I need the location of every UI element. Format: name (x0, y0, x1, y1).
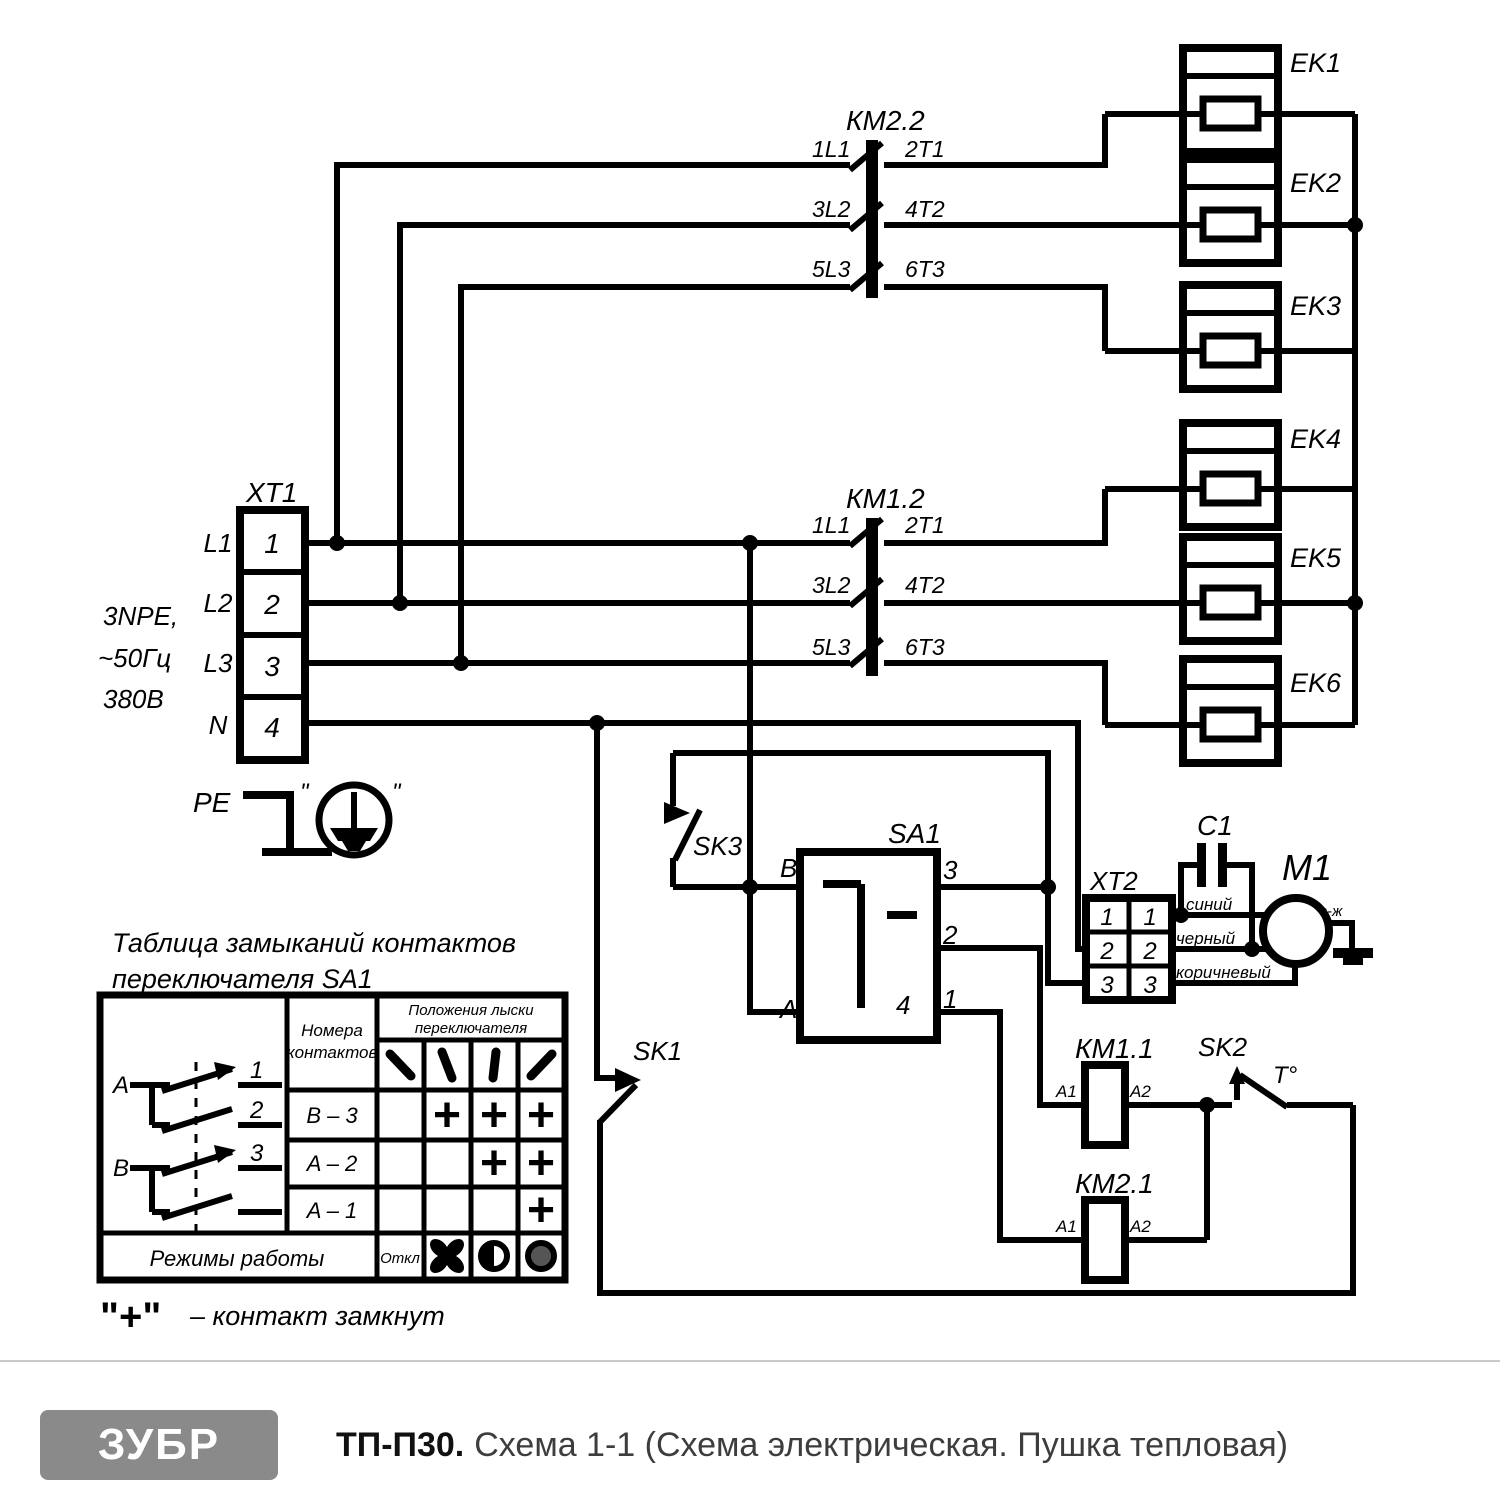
km21-body (1085, 1200, 1125, 1280)
wire-6t3-bot (884, 663, 1105, 725)
wire-sa1-out1-km21 (937, 1012, 1085, 1240)
heater-ek2: EK2 (1183, 159, 1355, 263)
km12-2t1: 2T1 (904, 512, 945, 538)
ek6-label: EK6 (1290, 668, 1342, 698)
phase-l2-label: L2 (204, 588, 233, 618)
km12-4t2: 4T2 (905, 572, 945, 598)
km12-label: КМ1.2 (846, 483, 925, 514)
sk1-contact-arrow (615, 1068, 641, 1092)
xt2-label: XT2 (1089, 866, 1138, 896)
supply-spec-1: 3NPE, (103, 601, 178, 631)
wire-brown-label: коричневый (1176, 963, 1271, 982)
legend-text: – контакт замкнут (189, 1301, 445, 1331)
xt1-label: XT1 (245, 477, 297, 508)
xt1-terminal-4: 4 (264, 712, 280, 743)
km11-coil: КМ1.1 A1 A2 (1055, 1033, 1154, 1145)
wire-black-label: черный (1176, 929, 1236, 948)
ek5-label: EK5 (1290, 543, 1342, 573)
diagram-1-label: 1 (250, 1057, 263, 1084)
sk3-switch: SK3 (664, 753, 743, 887)
heater-ek1: EK1 (1105, 48, 1355, 152)
wire-6t3-top (884, 287, 1105, 351)
mark-b3-pos2: + (480, 1089, 508, 1142)
phase-l1-label: L1 (204, 528, 233, 558)
pe-earth: PE " " (193, 779, 402, 855)
supply-spec-3: 380В (103, 684, 164, 714)
circuit-diagram: XT1 1 2 3 4 L1 L2 L3 N 3NPE, ~50Гц 380В … (0, 0, 1500, 1370)
ek4-element (1203, 474, 1258, 503)
xt2-l2: 2 (1099, 938, 1113, 965)
mode-full-power-icon (528, 1243, 554, 1269)
ek1-label: EK1 (1290, 48, 1341, 78)
xt2-l1: 1 (1100, 904, 1113, 931)
wire-bottom-return (600, 1105, 1353, 1293)
brand-logo-icon (0, 1395, 38, 1439)
mark-a1-pos3: + (527, 1184, 555, 1237)
xt2-terminal-block: XT2 1 2 3 1 2 3 (1086, 866, 1172, 1000)
km12-contacts: КМ1.2 1L1 2T1 3L2 4T2 5L3 6T3 (812, 483, 945, 676)
legend-plus: "+" (100, 1295, 161, 1339)
pe-label: PE (193, 787, 231, 818)
c1-label: C1 (1197, 810, 1233, 841)
table-title-line2: переключателя SA1 (112, 964, 373, 994)
footer-divider (0, 1360, 1500, 1362)
col-contacts-header-2: контактов (287, 1043, 378, 1062)
km21-a2: A2 (1129, 1217, 1151, 1236)
col-positions-header-1: Положения лыски (408, 1002, 534, 1019)
xt1-terminal-block: XT1 1 2 3 4 L1 L2 L3 N 3NPE, ~50Гц 380В (98, 477, 305, 760)
km22-6t3: 6T3 (905, 256, 945, 282)
sa1-in-a: A (778, 994, 797, 1024)
wire-ground-label: з-ж (1319, 903, 1343, 920)
sk1-switch: SK1 (597, 1036, 682, 1122)
mode-half-power-icon (481, 1243, 507, 1269)
sk1-label: SK1 (633, 1036, 682, 1066)
sa1-out-3: 3 (943, 855, 958, 885)
col-positions-header-2: переключателя (415, 1020, 527, 1037)
xt1-terminal-3: 3 (264, 651, 280, 682)
km12-3l2: 3L2 (812, 572, 851, 598)
riser-l2 (400, 225, 850, 603)
sa1-contact-table: Таблица замыканий контактов переключател… (100, 928, 565, 1339)
km22-2t1: 2T1 (904, 136, 945, 162)
km11-a2: A2 (1129, 1082, 1151, 1101)
wire-blue-label: синий (1186, 895, 1233, 914)
sk3-contact-arrow (664, 802, 690, 824)
sk2-label: SK2 (1198, 1032, 1248, 1062)
heater-ek5: EK5 (1183, 537, 1355, 641)
ek3-element (1203, 336, 1258, 365)
sa1-out-2: 2 (942, 920, 958, 950)
col-contacts-header-1: Номера (301, 1021, 363, 1040)
sk2-thermal-switch: SK2 T° (1198, 1032, 1298, 1107)
mark-b3-pos1: + (433, 1089, 461, 1142)
diagram-b-label: B (113, 1155, 129, 1182)
ek5-element (1203, 588, 1258, 617)
earth-quote-right: " (392, 779, 402, 806)
sa1-body (800, 852, 937, 1040)
table-title-line1: Таблица замыканий контактов (112, 928, 516, 958)
heater-ek3: EK3 (1105, 285, 1355, 389)
sk1-top-stub (597, 1068, 615, 1078)
ek2-element (1203, 210, 1258, 239)
c1-plate-right (1218, 843, 1227, 887)
sa1-in-b: B (780, 853, 797, 883)
km11-body (1085, 1065, 1125, 1145)
km22-contacts: КМ2.2 1L1 2T1 3L2 4T2 5L3 6T3 (812, 105, 945, 298)
km22-4t2: 4T2 (905, 196, 945, 222)
sa1-label: SA1 (888, 818, 941, 849)
schematic-page: XT1 1 2 3 4 L1 L2 L3 N 3NPE, ~50Гц 380В … (0, 0, 1500, 1500)
row-a1-name: A – 1 (305, 1198, 358, 1223)
caption-text: Схема 1-1 (Схема электрическая. Пушка те… (474, 1426, 1288, 1464)
position-icon-2 (493, 1052, 496, 1078)
heater-ek4: EK4 (1105, 423, 1355, 527)
supply-spec-2: ~50Гц (98, 643, 171, 673)
ek6-element (1203, 710, 1258, 739)
ek3-label: EK3 (1290, 291, 1341, 321)
row-a2-name: A – 2 (305, 1151, 358, 1176)
brand-logo: ЗУБР (40, 1410, 278, 1480)
sa1-out-4: 4 (896, 990, 910, 1020)
brand-name: ЗУБР (98, 1420, 220, 1470)
phase-l3-label: L3 (204, 648, 233, 678)
diagram-3-label: 3 (250, 1140, 264, 1167)
c1-plate-left (1197, 843, 1206, 887)
heater-ek6: EK6 (1105, 659, 1355, 763)
ek2-label: EK2 (1290, 168, 1341, 198)
km12-5l3: 5L3 (812, 634, 851, 660)
table-legend: "+" – контакт замкнут (100, 1295, 445, 1339)
mark-a2-pos3: + (527, 1137, 555, 1190)
m1-label: M1 (1282, 847, 1332, 888)
km21-label: КМ2.1 (1075, 1168, 1154, 1199)
ground-bar (1333, 948, 1373, 958)
pe-wire (243, 795, 290, 850)
km22-5l3: 5L3 (812, 256, 851, 282)
ground-bar-2 (1343, 958, 1363, 965)
xt2-r2: 2 (1142, 938, 1156, 965)
earth-quote-left: " (300, 779, 310, 806)
phase-n-label: N (209, 710, 228, 740)
mark-b3-pos3: + (527, 1089, 555, 1142)
km22-label: КМ2.2 (846, 105, 925, 136)
ek4-label: EK4 (1290, 424, 1341, 454)
km21-coil: КМ2.1 A1 A2 (1055, 1168, 1154, 1280)
sa1-selector: SA1 B A 3 2 1 4 (778, 818, 958, 1040)
diagram-a-label: A (111, 1072, 129, 1099)
xt1-terminal-2: 2 (263, 589, 280, 620)
model-number: ТП-П30. (336, 1426, 464, 1464)
riser-l1 (337, 165, 850, 543)
sa1-out-1: 1 (943, 984, 957, 1014)
row-b3-name: B – 3 (306, 1103, 358, 1128)
km11-label: КМ1.1 (1075, 1033, 1154, 1064)
modes-label: Режимы работы (150, 1246, 325, 1271)
km11-a1: A1 (1055, 1082, 1077, 1101)
sk3-label: SK3 (693, 831, 743, 861)
xt2-r3: 3 (1143, 972, 1157, 999)
off-label: Откл (380, 1250, 420, 1267)
xt2-l3: 3 (1100, 972, 1114, 999)
earth-block-1 (330, 828, 378, 841)
document-caption: ТП-П30.Схема 1-1 (Схема электрическая. П… (336, 1426, 1288, 1465)
xt1-terminal-1: 1 (264, 528, 280, 559)
km22-1l1: 1L1 (812, 136, 850, 162)
riser-l3 (461, 287, 850, 663)
km12-6t3: 6T3 (905, 634, 945, 660)
xt2-r1: 1 (1143, 904, 1156, 931)
sk2-temperature-label: T° (1273, 1062, 1298, 1089)
diagram-2-label: 2 (249, 1097, 263, 1124)
mark-a2-pos2: + (480, 1137, 508, 1190)
ek1-element (1203, 99, 1258, 128)
wire-l1-to-sa1-a (750, 543, 800, 1012)
km22-3l2: 3L2 (812, 196, 851, 222)
km12-1l1: 1L1 (812, 512, 850, 538)
km21-a1: A1 (1055, 1217, 1077, 1236)
footer: ЗУБР ТП-П30.Схема 1-1 (Схема электрическ… (0, 1395, 1500, 1495)
